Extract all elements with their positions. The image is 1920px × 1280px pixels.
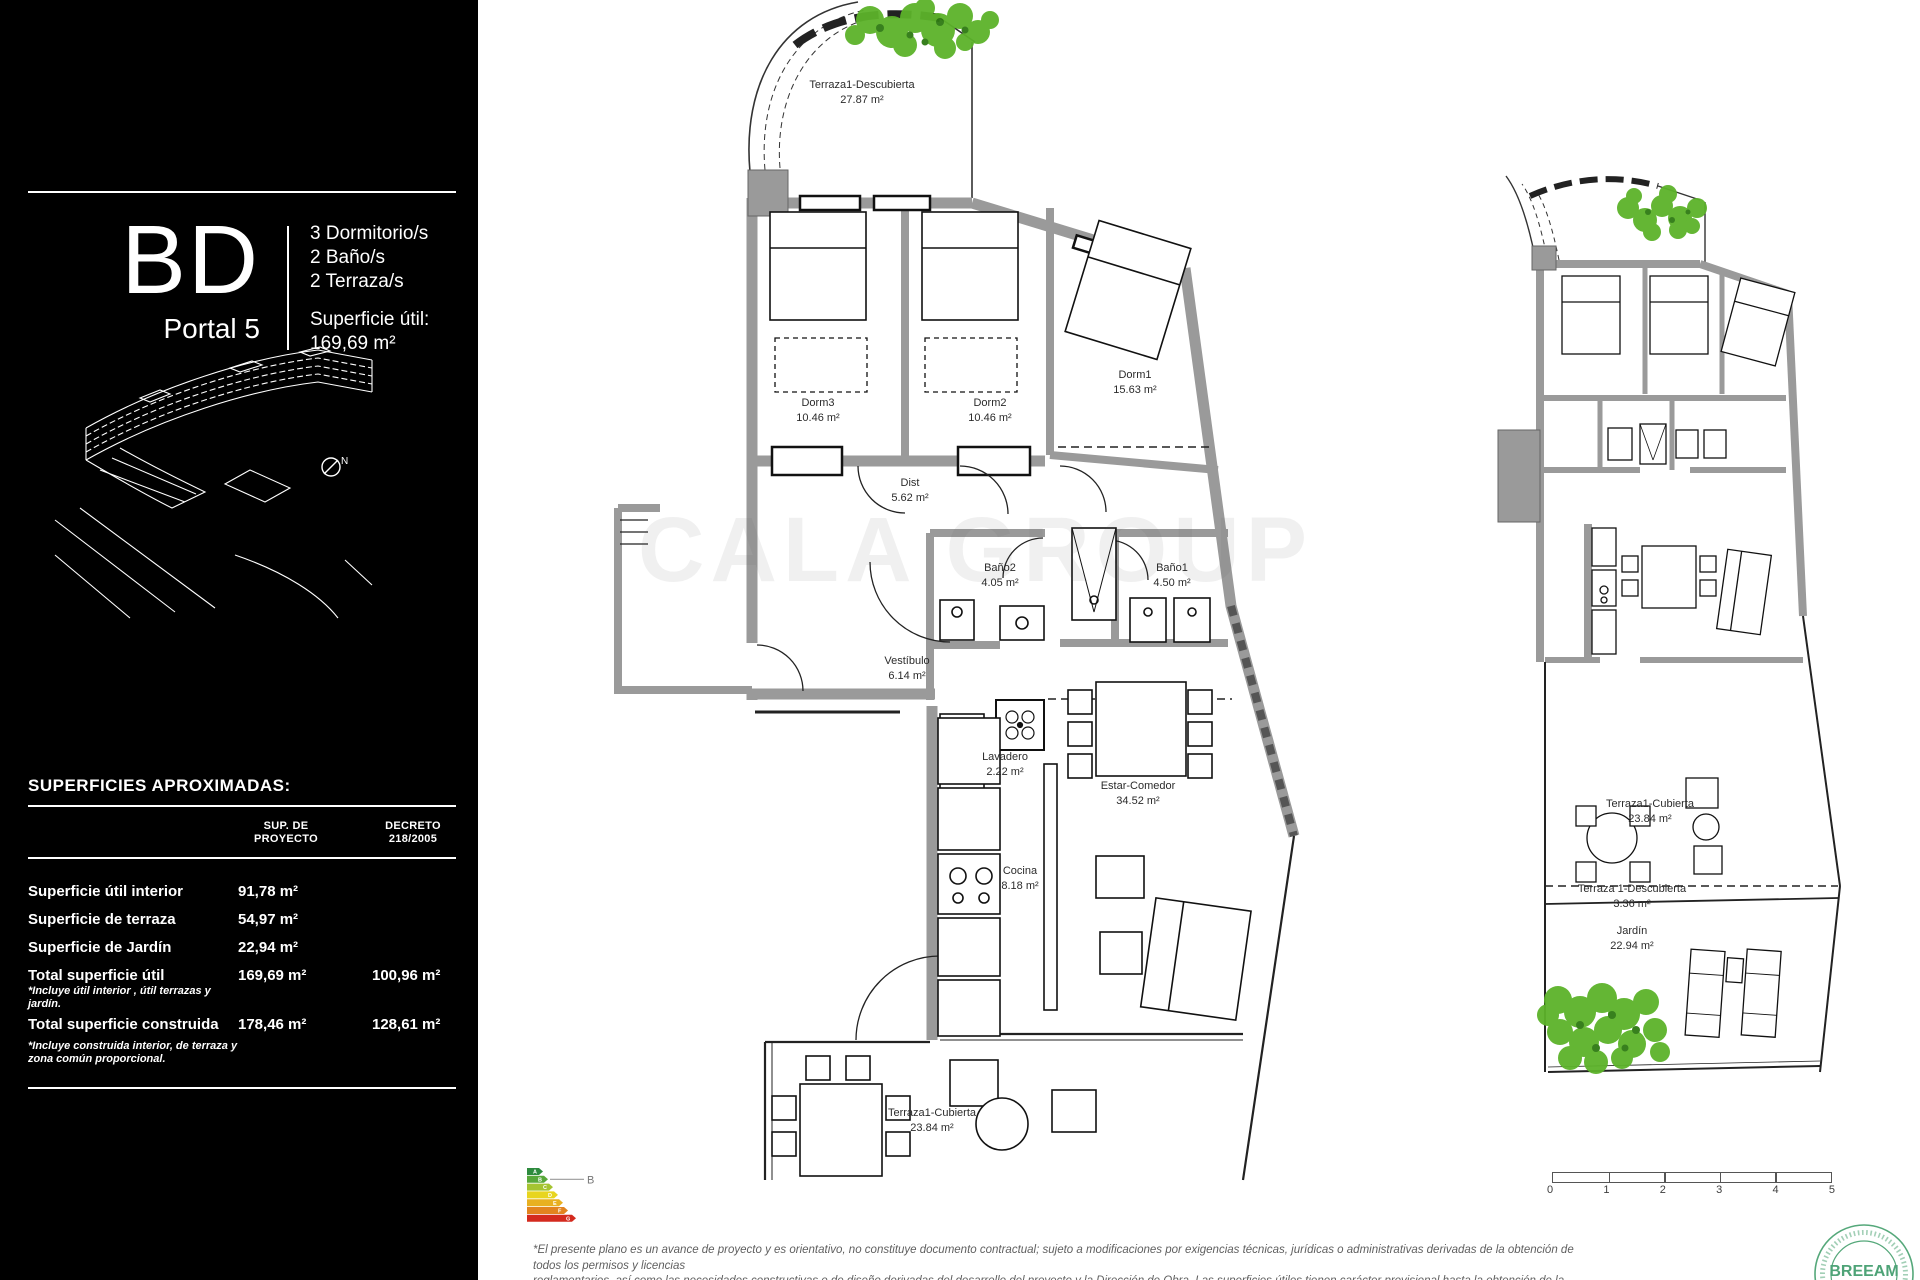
watermark: CALA GROUP: [638, 498, 1313, 603]
foliage-main-top: [845, 0, 999, 59]
right-plan-core-block: [1498, 430, 1540, 522]
room-label-bano2: Baño24.05 m²: [981, 561, 1018, 591]
disclaimer-text: *El presente plano es un avance de proye…: [533, 1243, 1595, 1280]
foliage-right-top: [1617, 185, 1707, 241]
main-plan-corner-block: [748, 170, 788, 216]
scale-bar-numbers: 01 23 45: [1547, 1184, 1835, 1196]
room-label-right-jardin: Jardín22.94 m²: [1610, 924, 1653, 954]
room-label-vestibulo: Vestíbulo6.14 m²: [884, 654, 929, 684]
room-label-estar-comedor: Estar-Comedor34.52 m²: [1101, 779, 1176, 809]
room-label-lavadero: Lavadero2.22 m²: [982, 750, 1028, 780]
room-label-cocina: Cocina8.18 m²: [1001, 864, 1038, 894]
room-label-dorm3: Dorm310.46 m²: [796, 396, 839, 426]
room-label-bano1: Baño14.50 m²: [1153, 561, 1190, 591]
page: BD Portal 5 3 Dormitorio/s 2 Baño/s 2 Te…: [0, 0, 1920, 1280]
breeam-label: BREEAM: [1829, 1263, 1898, 1280]
right-plan-corner-block: [1532, 246, 1556, 270]
breeam-logo: BREEAM: [1805, 1218, 1920, 1280]
room-label-right-terraza-cubierta: Terraza1-Cubierta23.84 m²: [1606, 797, 1694, 827]
room-label-dorm1: Dorm115.63 m²: [1113, 368, 1156, 398]
floorplan-drawing: [0, 0, 1920, 1280]
room-label-terraza-descubierta: Terraza1-Descubierta27.87 m²: [809, 78, 914, 108]
room-label-right-terraza-descubierta: Terraza 1-Descubierta3.36 m²: [1578, 882, 1686, 912]
room-label-dist: Dist5.62 m²: [891, 476, 928, 506]
foliage-right-garden: [1537, 983, 1670, 1074]
room-label-dorm2: Dorm210.46 m²: [968, 396, 1011, 426]
room-label-terraza-cubierta: Terraza1-Cubierta23.84 m²: [888, 1106, 976, 1136]
scale-bar: [1552, 1172, 1832, 1183]
